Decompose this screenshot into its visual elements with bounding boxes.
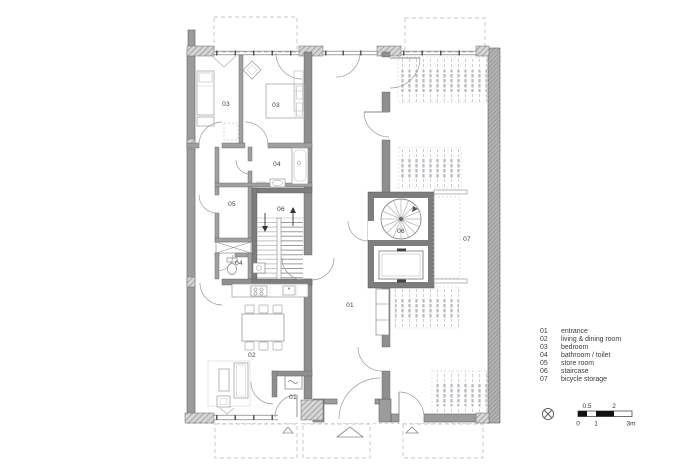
legend-item: 05store room bbox=[540, 360, 621, 368]
legend-item: 07bicycle storage bbox=[540, 376, 621, 384]
scale-label: 2 bbox=[612, 403, 616, 410]
north-arrow-icon bbox=[542, 408, 553, 419]
elevator bbox=[379, 249, 423, 283]
floor-plan-page: { "plan": { "room_labels": ["03","03","0… bbox=[0, 0, 700, 467]
scale-label: 0 bbox=[576, 421, 580, 428]
legend-code: 01 bbox=[540, 328, 561, 336]
room-label: 07 bbox=[463, 236, 471, 243]
room-label: 03 bbox=[272, 102, 280, 109]
room-label: 06 bbox=[277, 206, 285, 213]
room-label: 01 bbox=[346, 302, 354, 309]
bike-rack-rails bbox=[434, 190, 467, 283]
scale-label: 3m bbox=[626, 421, 635, 428]
legend-label: bicycle storage bbox=[561, 376, 607, 383]
legend-code: 05 bbox=[540, 360, 561, 368]
legend-label: bathroom / toilet bbox=[561, 352, 610, 359]
dining-set bbox=[242, 305, 284, 350]
corridor-lockers bbox=[376, 289, 389, 335]
legend-label: store room bbox=[561, 360, 594, 367]
room-label: 04 bbox=[273, 161, 281, 168]
floor-plan-drawing: 03 03 04 05 06 04 01 02 01 06 07 0.5 2 0… bbox=[0, 0, 700, 467]
room-label: 06 bbox=[397, 228, 405, 235]
legend-item: 06staircase bbox=[540, 368, 621, 376]
legend-label: bedroom bbox=[561, 344, 588, 351]
legend: 01entrance 02living & dining room 03bedr… bbox=[540, 328, 621, 384]
legend-label: entrance bbox=[561, 328, 588, 335]
legend-code: 02 bbox=[540, 336, 561, 344]
kitchen bbox=[232, 284, 308, 297]
room-label: 04 bbox=[235, 260, 243, 267]
scale-label: 1 bbox=[594, 421, 598, 428]
legend-code: 04 bbox=[540, 352, 561, 360]
hatched-piers bbox=[185, 46, 489, 423]
legend-item: 02living & dining room bbox=[540, 336, 621, 344]
room-label: 03 bbox=[222, 101, 230, 108]
scale-bar: 0.5 2 0 1 3m bbox=[576, 403, 635, 428]
bedroom-furniture bbox=[197, 61, 304, 140]
washing-machine bbox=[285, 376, 302, 389]
room-label: 02 bbox=[248, 352, 256, 359]
legend-label: staircase bbox=[561, 368, 589, 375]
sofa-group bbox=[208, 361, 250, 407]
legend-item: 01entrance bbox=[540, 328, 621, 336]
legend-item: 04bathroom / toilet bbox=[540, 352, 621, 360]
scale-label: 0.5 bbox=[582, 403, 591, 410]
legend-label: living & dining room bbox=[561, 336, 621, 343]
legend-code: 06 bbox=[540, 368, 561, 376]
legend-code: 03 bbox=[540, 344, 561, 352]
room-label: 01 bbox=[289, 394, 297, 401]
legend-item: 03bedroom bbox=[540, 344, 621, 352]
legend-code: 07 bbox=[540, 376, 561, 384]
room-label: 05 bbox=[228, 201, 236, 208]
